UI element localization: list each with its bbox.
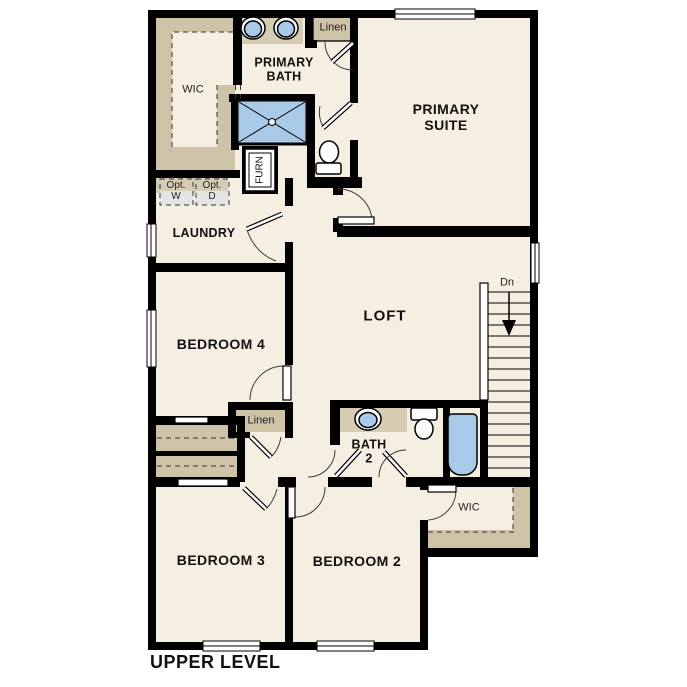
floor-plan: WIC PRIMARY BATH Linen PRIMARY SUITE Opt…: [0, 0, 687, 687]
closet-slider-door: [178, 479, 228, 486]
closet-slider-door: [175, 417, 208, 423]
window: [531, 243, 539, 283]
window: [147, 224, 156, 257]
stair-railing: [480, 283, 488, 400]
window: [395, 9, 475, 19]
window: [147, 310, 156, 367]
shower: [237, 100, 307, 144]
furnace-box: [245, 149, 275, 191]
floor-plan-drawing: [0, 0, 687, 687]
bath2-sink: [355, 408, 381, 430]
window: [317, 641, 374, 651]
bathtub: [448, 414, 477, 475]
window: [203, 641, 260, 651]
